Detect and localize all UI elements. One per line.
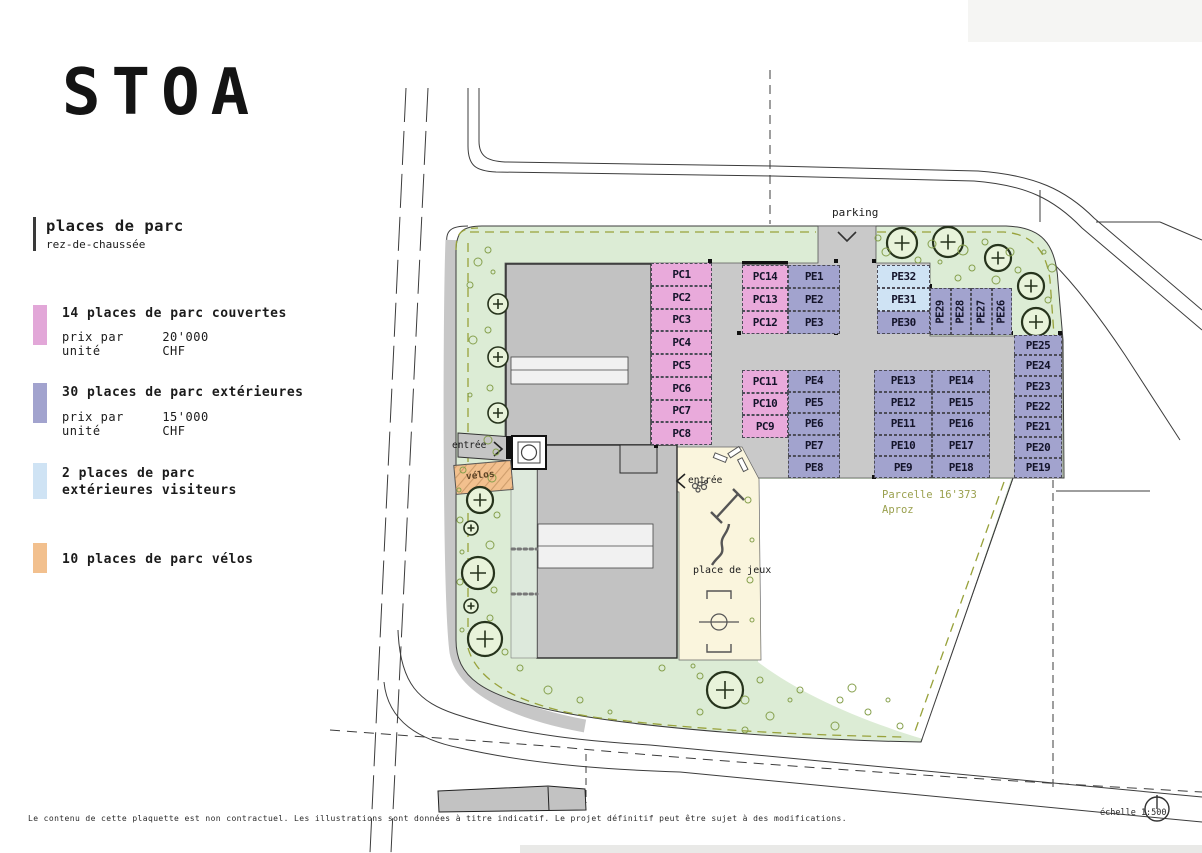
parking-stall-PC4: PC4 xyxy=(651,331,712,354)
legend-swatch-velos xyxy=(33,543,47,573)
legend-swatch-covered xyxy=(33,305,47,345)
parking-stall-PC2: PC2 xyxy=(651,286,712,309)
parking-stall-PE24: PE24 xyxy=(1014,355,1062,375)
stall-label: PE2 xyxy=(805,293,823,306)
entrance-mid-label: entrée xyxy=(688,475,722,486)
parking-stall-PE12: PE12 xyxy=(874,392,932,414)
parking-stall-PE26: PE26 xyxy=(992,288,1013,335)
parking-stall-PE11: PE11 xyxy=(874,413,932,435)
parking-stall-PC7: PC7 xyxy=(651,400,712,423)
parking-stall-PE27: PE27 xyxy=(971,288,992,335)
stall-label: PE8 xyxy=(805,461,823,474)
building-band-upper xyxy=(511,357,628,384)
stall-label: PC13 xyxy=(753,293,778,306)
stall-label: PE30 xyxy=(891,316,916,329)
parking-stall-PC9: PC9 xyxy=(742,415,788,438)
stall-label: PE4 xyxy=(805,374,823,387)
parking-stall-PE15: PE15 xyxy=(932,392,990,414)
parcel-label-1: Parcelle 16'373 xyxy=(882,489,977,501)
parking-stall-PE1: PE1 xyxy=(788,265,840,288)
price-label: prix par unité xyxy=(62,330,162,358)
entrance-left-label: entrée xyxy=(452,440,486,451)
legend-swatch-visitor xyxy=(33,463,47,499)
stall-label: PC14 xyxy=(753,270,778,283)
parking-stall-PE19: PE19 xyxy=(1014,458,1062,478)
parking-stall-PE13: PE13 xyxy=(874,370,932,392)
parking-stall-PE6: PE6 xyxy=(788,413,840,435)
parking-stall-PE18: PE18 xyxy=(932,456,990,478)
parking-label: parking xyxy=(832,206,878,219)
scale-label: échelle 1:500 xyxy=(1100,808,1167,818)
legend-title: places de parc xyxy=(46,217,184,235)
legend-subtitle: rez-de-chaussée xyxy=(46,238,184,251)
brand-logo: STOA xyxy=(62,56,260,130)
stall-label: PC8 xyxy=(672,427,690,440)
legend-price-covered: prix par unité 20'000 CHF xyxy=(62,330,234,358)
stall-label: PE17 xyxy=(949,439,974,452)
stall-label: PE5 xyxy=(805,396,823,409)
parking-stall-PC5: PC5 xyxy=(651,354,712,377)
parking-stall-PE22: PE22 xyxy=(1014,396,1062,416)
stall-label: PE19 xyxy=(1026,461,1051,474)
neighbor-building xyxy=(438,786,586,812)
parking-stall-PE8: PE8 xyxy=(788,456,840,478)
stall-label: PC3 xyxy=(672,313,690,326)
parking-stall-PE25: PE25 xyxy=(1014,335,1062,355)
stall-label: PE24 xyxy=(1026,359,1051,372)
parking-stall-PE5: PE5 xyxy=(788,392,840,414)
stall-label: PC4 xyxy=(672,336,690,349)
parking-stall-PC11: PC11 xyxy=(742,370,788,393)
legend-header: places de parc rez-de-chaussée xyxy=(33,217,184,251)
stall-label: PC9 xyxy=(756,420,774,433)
stall-label: PC11 xyxy=(753,375,778,388)
legend-label-visitor: 2 places de parc xyxy=(62,466,195,481)
stall-label: PE18 xyxy=(949,461,974,474)
stall-label: PE11 xyxy=(891,417,916,430)
stall-label: PC2 xyxy=(672,291,690,304)
price-value: 15'000 CHF xyxy=(162,410,234,438)
corner-marker xyxy=(737,331,741,335)
stall-label: PE28 xyxy=(955,300,967,323)
parking-stall-PE3: PE3 xyxy=(788,311,840,334)
stall-label: PC12 xyxy=(753,316,778,329)
parking-stall-PE10: PE10 xyxy=(874,435,932,457)
stall-label: PE6 xyxy=(805,417,823,430)
stall-label: PE14 xyxy=(949,374,974,387)
parking-stall-PC13: PC13 xyxy=(742,288,788,311)
parking-stall-PE2: PE2 xyxy=(788,288,840,311)
parking-stall-PE21: PE21 xyxy=(1014,417,1062,437)
stall-label: PE27 xyxy=(975,300,987,323)
covered-stall-wall xyxy=(742,261,788,265)
price-label: prix par unité xyxy=(62,410,162,438)
legend-swatch-exterior xyxy=(33,383,47,423)
stall-label: PE29 xyxy=(934,300,946,323)
legend-label-velos: 10 places de parc vélos xyxy=(62,552,254,567)
legend-label-exterior: 30 places de parc extérieures xyxy=(62,385,303,400)
footer-disclaimer: Le contenu de cette plaquette est non co… xyxy=(28,814,847,823)
parking-stall-PE4: PE4 xyxy=(788,370,840,392)
stall-label: PE1 xyxy=(805,270,823,283)
legend-label-covered: 14 places de parc couvertes xyxy=(62,306,287,321)
parking-stall-PC12: PC12 xyxy=(742,311,788,334)
price-value: 20'000 CHF xyxy=(162,330,234,358)
stall-label: PE20 xyxy=(1026,441,1051,454)
corner-marker xyxy=(834,259,838,263)
parking-stall-PE30: PE30 xyxy=(877,311,930,334)
stall-label: PC6 xyxy=(672,382,690,395)
parking-stall-PE32: PE32 xyxy=(877,265,930,288)
stall-label: PE15 xyxy=(949,396,974,409)
stall-label: PE32 xyxy=(891,270,916,283)
legend-price-exterior: prix par unité 15'000 CHF xyxy=(62,410,234,438)
parking-stall-PE14: PE14 xyxy=(932,370,990,392)
stall-label: PC10 xyxy=(753,397,778,410)
scan-tint-bottom xyxy=(520,845,1202,853)
entrance-door xyxy=(506,436,511,459)
stall-label: PE3 xyxy=(805,316,823,329)
parking-stall-PC10: PC10 xyxy=(742,393,788,416)
parking-stall-PE23: PE23 xyxy=(1014,376,1062,396)
parking-stall-PE7: PE7 xyxy=(788,435,840,457)
parking-stall-PC6: PC6 xyxy=(651,377,712,400)
playground-label: place de jeux xyxy=(693,565,771,576)
parking-stall-PE31: PE31 xyxy=(877,288,930,311)
stall-label: PE13 xyxy=(891,374,916,387)
stall-label: PE16 xyxy=(949,417,974,430)
parking-stall-PC14: PC14 xyxy=(742,265,788,288)
legend-label-visitor-2: extérieures visiteurs xyxy=(62,483,237,498)
stall-label: PC7 xyxy=(672,404,690,417)
parcel-label-2: Aproz xyxy=(882,504,914,516)
parking-stall-PC8: PC8 xyxy=(651,422,712,445)
parking-stall-PE16: PE16 xyxy=(932,413,990,435)
stall-label: PC1 xyxy=(672,268,690,281)
scan-tint-topright xyxy=(968,0,1202,42)
stall-label: PE9 xyxy=(894,461,912,474)
stair-structure xyxy=(512,436,546,469)
green-strip-building xyxy=(511,445,537,658)
stall-label: PE23 xyxy=(1026,380,1051,393)
corner-marker xyxy=(872,259,876,263)
stall-label: PE25 xyxy=(1026,339,1051,352)
stall-label: PE21 xyxy=(1026,420,1051,433)
stall-label: PE22 xyxy=(1026,400,1051,413)
stall-label: PE26 xyxy=(996,300,1008,323)
stall-label: PE31 xyxy=(891,293,916,306)
stall-label: PE12 xyxy=(891,396,916,409)
parking-stall-PC1: PC1 xyxy=(651,263,712,286)
stall-label: PE10 xyxy=(891,439,916,452)
parking-stall-PE17: PE17 xyxy=(932,435,990,457)
parking-stall-PE9: PE9 xyxy=(874,456,932,478)
stall-label: PE7 xyxy=(805,439,823,452)
brochure-page: PC1PC2PC3PC4PC5PC6PC7PC8PC14PC13PC12PE1P… xyxy=(0,0,1202,853)
parking-stall-PE28: PE28 xyxy=(951,288,972,335)
parking-stall-PE20: PE20 xyxy=(1014,437,1062,457)
stall-label: PC5 xyxy=(672,359,690,372)
parking-stall-PE29: PE29 xyxy=(930,288,951,335)
parking-stall-PC3: PC3 xyxy=(651,309,712,332)
